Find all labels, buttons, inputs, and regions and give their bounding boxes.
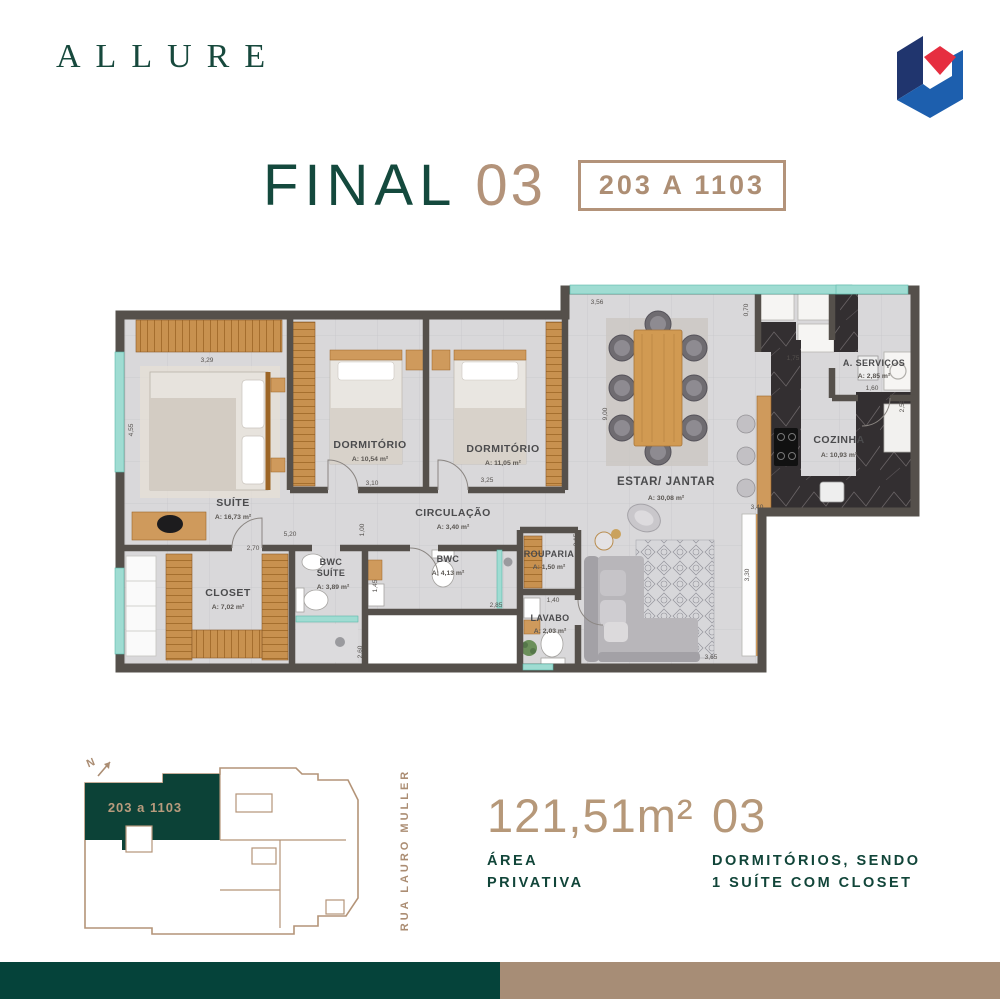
dim-label: 2,15	[573, 533, 580, 546]
keyplan-unit-label: 203 a 1103	[108, 800, 182, 815]
dim-label: 2,60	[357, 645, 364, 658]
room-label: CLOSET	[205, 587, 251, 599]
room-area: A: 10,93 m²	[821, 452, 858, 459]
void-area	[368, 614, 518, 664]
area-label-line2: PRIVATIVA	[487, 873, 694, 895]
area-label: ÁREA PRIVATIVA	[487, 851, 694, 895]
street-label: RUA LAURO MULLER	[399, 769, 411, 931]
room-label: BWC	[320, 557, 343, 567]
room-label: CIRCULAÇÃO	[415, 506, 491, 519]
north-indicator: N	[85, 756, 110, 776]
dining-set	[606, 311, 708, 466]
units-value: 03	[712, 792, 921, 839]
room-label: LAVABO	[530, 613, 569, 623]
rouparia-shelves	[524, 536, 542, 588]
title-row: FINAL 03 203 A 1103	[263, 152, 786, 219]
room-label: ESTAR/ JANTAR	[617, 476, 715, 488]
brand-mark-icon	[897, 36, 963, 118]
room-label: BWC	[437, 554, 460, 564]
room-label: SUÍTE	[317, 568, 346, 578]
units-stat: 03 DORMITÓRIOS, SENDO 1 SUÍTE COM CLOSET	[712, 792, 921, 895]
dim-label: 3,10	[366, 480, 379, 487]
keyplan: 203 a 1103 N RUA LAURO MULLER	[85, 756, 411, 934]
room-area: A: 7,02 m²	[212, 604, 245, 611]
dim-label: 2,85	[490, 602, 503, 609]
room-label: DORMITÓRIO	[466, 442, 539, 455]
title-badge: 203 A 1103	[578, 160, 786, 211]
dim-label: 3,65	[705, 654, 718, 661]
title-number: 03	[475, 152, 546, 219]
dim-label: 3,40	[751, 504, 764, 511]
north-label: N	[85, 756, 97, 770]
room-label: SUÍTE	[216, 496, 249, 509]
dim-label: 2,55	[899, 399, 906, 412]
room-area: A: 2,03 m²	[534, 628, 567, 635]
room-area: A: 3,89 m²	[317, 584, 350, 591]
dim-label: 4,55	[128, 423, 135, 436]
dim-label: 9,00	[602, 407, 609, 420]
dim-label: 2,70	[247, 545, 260, 552]
room-area: A: 2,85 m²	[858, 373, 891, 380]
room-area: A: 11,05 m²	[485, 460, 522, 467]
footer-bar-green	[0, 962, 500, 999]
dim-label: 3,30	[744, 568, 751, 581]
room-area: A: 1,50 m²	[533, 564, 566, 571]
brand-logo: ALLURE	[56, 38, 280, 76]
room-label: COZINHA	[813, 434, 864, 446]
room-area: A: 10,54 m²	[352, 456, 389, 463]
dim-label: 1,60	[866, 385, 879, 392]
dim-label: 1,40	[547, 597, 560, 604]
area-label-line1: ÁREA	[487, 851, 694, 873]
keyplan-stair-core	[126, 826, 152, 852]
footer-bar-tan	[500, 962, 1000, 999]
room-area: A: 16,73 m²	[215, 514, 252, 521]
dim-label: 3,25	[481, 477, 494, 484]
room-area: A: 4,13 m²	[432, 570, 465, 577]
dim-label: 1,45	[372, 579, 379, 592]
title-main: FINAL	[263, 152, 457, 219]
units-label-line2: 1 SUÍTE COM CLOSET	[712, 873, 921, 895]
apartment-plan: SUÍTE A: 16,73 m² DORMITÓRIO A: 10,54 m²…	[115, 285, 915, 670]
units-label: DORMITÓRIOS, SENDO 1 SUÍTE COM CLOSET	[712, 851, 921, 895]
room-area: A: 3,40 m²	[437, 524, 470, 531]
units-label-line1: DORMITÓRIOS, SENDO	[712, 851, 921, 873]
room-area: A: 30,08 m²	[648, 495, 685, 502]
room-label: A. SERVIÇOS	[843, 358, 905, 368]
room-label: ROUPARIA	[524, 549, 575, 559]
area-stat: 121,51m² ÁREA PRIVATIVA	[487, 792, 694, 895]
dim-label: 1,00	[359, 523, 366, 536]
dim-label: 0,70	[743, 303, 750, 316]
dim-label: 1,75	[787, 355, 800, 362]
room-label: DORMITÓRIO	[333, 438, 406, 451]
dim-label: 3,56	[591, 299, 604, 306]
dim-label: 3,29	[201, 357, 214, 364]
dim-label: 5,20	[284, 531, 297, 538]
area-value: 121,51m²	[487, 792, 694, 839]
